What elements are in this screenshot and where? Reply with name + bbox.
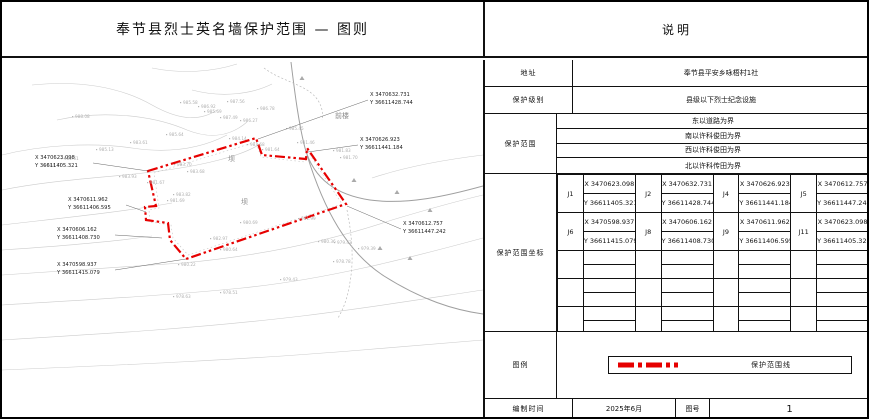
date-label: 编制时间 [485,399,573,419]
coord-point-id: J11 [791,213,817,251]
spot-elevation-dot [333,261,334,262]
spot-elevation-value: 984.14 [232,136,247,141]
spot-elevation-value: 983.61 [133,140,148,145]
spot-elevation-dot [173,194,174,195]
spot-elevation-dot [130,142,131,143]
coord-point-id: J5 [791,175,817,213]
spot-elevation-value: 980.64 [223,247,238,252]
legend-line-label: 保护范围线 [751,360,791,370]
scope-north: 北以许科传田为界 [557,158,869,173]
sheet-title-cell: 奉节县烈士英名墙保护范围 — 图则 [2,2,483,58]
coord-x-value [583,279,635,293]
scope-south: 南以许科俊田为界 [557,129,869,144]
protection-scope-label: 保护范围 [485,114,557,173]
callout-leader-line [115,259,186,270]
spot-elevation-value: 981.64 [265,147,280,152]
spot-elevation-value: 985.58 [183,100,198,105]
spot-elevation-dot [72,116,73,117]
coord-point-id: J8 [635,213,661,251]
coord-y-value [583,265,635,279]
coord-x-value: X 3470632.731 [661,175,713,194]
callout-x-coordinate: X 3470611.962 [68,197,108,203]
legend-boundary-line-sample [617,361,679,369]
coord-point-id [791,307,817,332]
spot-elevation-value: 985.64 [169,132,184,137]
spot-elevation-dot [180,102,181,103]
coord-x-value [661,279,713,293]
spot-elevation-value: 979.39 [361,246,376,251]
coord-point-id: J4 [713,175,739,213]
callout-x-coordinate: X 3470623.098 [35,155,75,161]
spot-elevation-value: 981.99 [301,216,316,221]
callout-x-coordinate: X 3470612.757 [403,221,443,227]
site-map-panel: 988.08985.58986.92985.69987.56987.49986.… [2,60,483,419]
address-value: 奉节县平安乡咏梧村1社 [573,60,869,86]
contour-lines [2,64,483,370]
spot-elevation-dot [220,292,221,293]
spot-elevation-value: 978.51 [223,290,238,295]
spot-elevation-dot [119,176,120,177]
coord-point-id [558,251,584,279]
spot-elevation-dot [187,171,188,172]
spot-elevation-dot [173,296,174,297]
spot-elevation-dot [96,149,97,150]
spot-elevation-value: 980.22 [181,262,196,267]
page-title: 奉节县烈士英名墙保护范围 — 图则 [116,19,369,39]
coord-point-id: J2 [635,175,661,213]
callout-y-coordinate: Y 36611405.321 [34,163,78,169]
coord-x-value [583,307,635,321]
coord-x-value [817,279,869,293]
spot-elevation-dot [240,222,241,223]
coord-point-id [713,279,739,307]
coord-y-value: Y 36611428.744 [661,194,713,213]
spot-elevation-value: 985.13 [99,147,114,152]
protection-level-label: 保护级别 [485,87,573,113]
coord-x-value [817,251,869,265]
spot-elevation-value: 985.45 [289,126,304,131]
spot-elevation-dot [220,249,221,250]
sheet-number-label: 图号 [676,399,710,419]
spot-elevation-value: 981.69 [170,198,185,203]
spot-elevation-dot [174,164,175,165]
scope-east: 东以道路为界 [557,114,869,129]
coord-y-value: Y 36611441.184 [739,194,791,213]
spot-elevation-value: 986.27 [243,118,258,123]
spot-elevation-value: 983.68 [250,142,265,147]
coord-point-id: J9 [713,213,739,251]
protection-scope-rows: 保护范围 东以道路为界 南以许科俊田为界 西以许科俊田为界 北以许科传田为界 [485,114,869,174]
spot-elevation-dot [340,157,341,158]
spot-elevation-value: 980.69 [243,220,258,225]
spot-elevation-value: 983.82 [176,192,191,197]
spot-elevation-dot [178,264,179,265]
spot-elevation-value: 978.63 [176,294,191,299]
scope-west: 西以许科俊田为界 [557,144,869,159]
coord-y-value [583,293,635,307]
callout-x-coordinate: X 3470626.923 [360,137,400,143]
legend-content: 保护范围线 [557,332,869,398]
coord-y-value: Y 36611405.321 [817,232,869,251]
spot-elevation-value: 987.56 [230,99,245,104]
sheet-number-value: 1 [710,399,869,419]
coord-x-value [739,251,791,265]
spot-elevation-dot [262,149,263,150]
coord-y-value [817,321,869,332]
coord-x-value [661,307,713,321]
spot-elevation-dot [297,142,298,143]
plan-sheet: 奉节县烈士英名墙保护范围 — 图则 说明 [0,0,869,419]
spot-elevation-value: 983.70 [177,162,192,167]
coordinates-section: 保护范围坐标 J1X 3470623.098J2X 3470632.731J4X… [485,174,869,332]
spot-elevation-value: 981.67 [150,180,165,185]
spot-elevation-value: 981.83 [336,148,351,153]
map-place-label: 前楼 [335,111,349,120]
coord-point-id: J1 [558,175,584,213]
coord-point-id [558,279,584,307]
spot-elevation-dot [280,279,281,280]
map-place-label: 坝 [228,154,235,163]
coord-point-id [791,279,817,307]
callout-leader-line [115,235,162,238]
coord-y-value [661,265,713,279]
spot-elevation-dot [147,182,148,183]
coord-x-value: X 3470626.923 [739,175,791,194]
spot-elevation-dot [318,241,319,242]
spot-elevation-dot [358,248,359,249]
coord-point-id [558,307,584,332]
coordinates-label: 保护范围坐标 [485,174,557,331]
coord-x-value: X 3470598.937 [583,213,635,232]
callout-y-coordinate: Y 36611447.242 [402,229,446,235]
spot-elevation-dot [220,117,221,118]
coord-y-value [661,321,713,332]
spot-elevation-dot [166,134,167,135]
coordinates-table: J1X 3470623.098J2X 3470632.731J4X 347062… [557,174,869,331]
coord-point-id [635,307,661,332]
coord-y-value: Y 36611415.079 [583,232,635,251]
coord-y-value [817,265,869,279]
callout-x-coordinate: X 3470606.162 [57,227,97,233]
coord-point-id [791,251,817,279]
spot-elevation-value: 983.68 [190,169,205,174]
coord-point-id [713,251,739,279]
spot-elevation-dot [247,144,248,145]
coord-y-value: Y 36611447.242 [817,194,869,213]
spot-elevation-dot [210,238,211,239]
coord-x-value [817,307,869,321]
coord-x-value: X 3470606.162 [661,213,713,232]
coord-y-value [583,321,635,332]
coord-y-value [739,293,791,307]
coord-y-value: Y 36611408.730 [661,232,713,251]
coord-y-value: Y 36611406.595 [739,232,791,251]
coord-x-value [583,251,635,265]
coord-x-value: X 3470612.757 [817,175,869,194]
map-place-label: 坝 [241,197,248,206]
callout-y-coordinate: Y 36611408.730 [56,235,100,241]
coord-y-value [739,265,791,279]
coord-x-value: X 3470623.098 [817,213,869,232]
notes-header: 说明 [662,21,692,38]
legend-section: 图例 保护范围线 [485,332,869,399]
date-value: 2025年6月 [573,399,676,419]
coord-y-value: Y 36611405.321 [583,194,635,213]
callout-x-coordinate: X 3470632.731 [370,92,410,98]
coordinates-grid: J1X 3470623.098J2X 3470632.731J4X 347062… [557,174,869,331]
callout-x-coordinate: X 3470598.937 [57,262,97,268]
coord-x-value: X 3470611.962 [739,213,791,232]
spot-elevation-dot [334,242,335,243]
spot-elevation-value: 980.36 [321,239,336,244]
legend-box: 保护范围线 [608,356,852,374]
spot-elevation-value: 981.46 [300,140,315,145]
coord-point-id [713,307,739,332]
protection-level-row: 保护级别 县级以下烈士纪念设施 [485,87,869,114]
legend-label: 图例 [485,332,557,398]
coord-point-id [635,279,661,307]
spot-elevation-dot [227,101,228,102]
callout-leader-line [93,163,148,171]
footer-row: 编制时间 2025年6月 图号 1 [485,399,869,419]
spot-elevation-dot [257,108,258,109]
callout-y-coordinate: Y 36611428.744 [369,100,413,106]
protection-level-value: 县级以下烈士纪念设施 [573,87,869,113]
callout-y-coordinate: Y 36611441.184 [359,145,403,151]
spot-elevation-value: 979.43 [283,277,298,282]
coord-x-value: X 3470623.098 [583,175,635,194]
spot-elevation-value: 987.49 [223,115,238,120]
notes-table: 地址 奉节县平安乡咏梧村1社 保护级别 县级以下烈士纪念设施 保护范围 东以道路… [483,60,869,419]
site-map-drawing: 988.08985.58986.92985.69987.56987.49986.… [2,60,483,419]
spot-elevation-dot [167,200,168,201]
callout-y-coordinate: Y 36611406.595 [67,205,111,211]
spot-elevation-value: 982.97 [213,236,228,241]
address-label: 地址 [485,60,573,86]
coord-y-value [817,293,869,307]
spot-elevation-dot [204,111,205,112]
coord-x-value [739,279,791,293]
coord-y-value [661,293,713,307]
coord-point-id: J6 [558,213,584,251]
callout-leader-line [126,205,146,212]
spot-elevation-value: 981.70 [343,155,358,160]
address-row: 地址 奉节县平安乡咏梧村1社 [485,60,869,87]
spot-elevation-value: 985.69 [207,109,222,114]
coord-y-value [739,321,791,332]
spot-elevation-value: 978.78 [336,259,351,264]
spot-elevation-value: 988.08 [75,114,90,119]
spot-elevation-value: 986.78 [260,106,275,111]
coord-x-value [739,307,791,321]
spot-elevation-dot [298,218,299,219]
spot-elevation-value: 979.42 [337,240,352,245]
notes-header-cell: 说明 [483,2,869,58]
spot-elevation-dot [240,120,241,121]
spot-elevation-value: 983.93 [122,174,137,179]
coord-x-value [661,251,713,265]
spot-elevation-dot [229,138,230,139]
spot-elevation-dot [198,106,199,107]
coord-point-id [635,251,661,279]
callout-y-coordinate: Y 36611415.079 [56,270,100,276]
spot-elevation-dot [333,150,334,151]
coordinate-callouts: X 3470623.098Y 36611405.321X 3470611.962… [34,92,446,276]
